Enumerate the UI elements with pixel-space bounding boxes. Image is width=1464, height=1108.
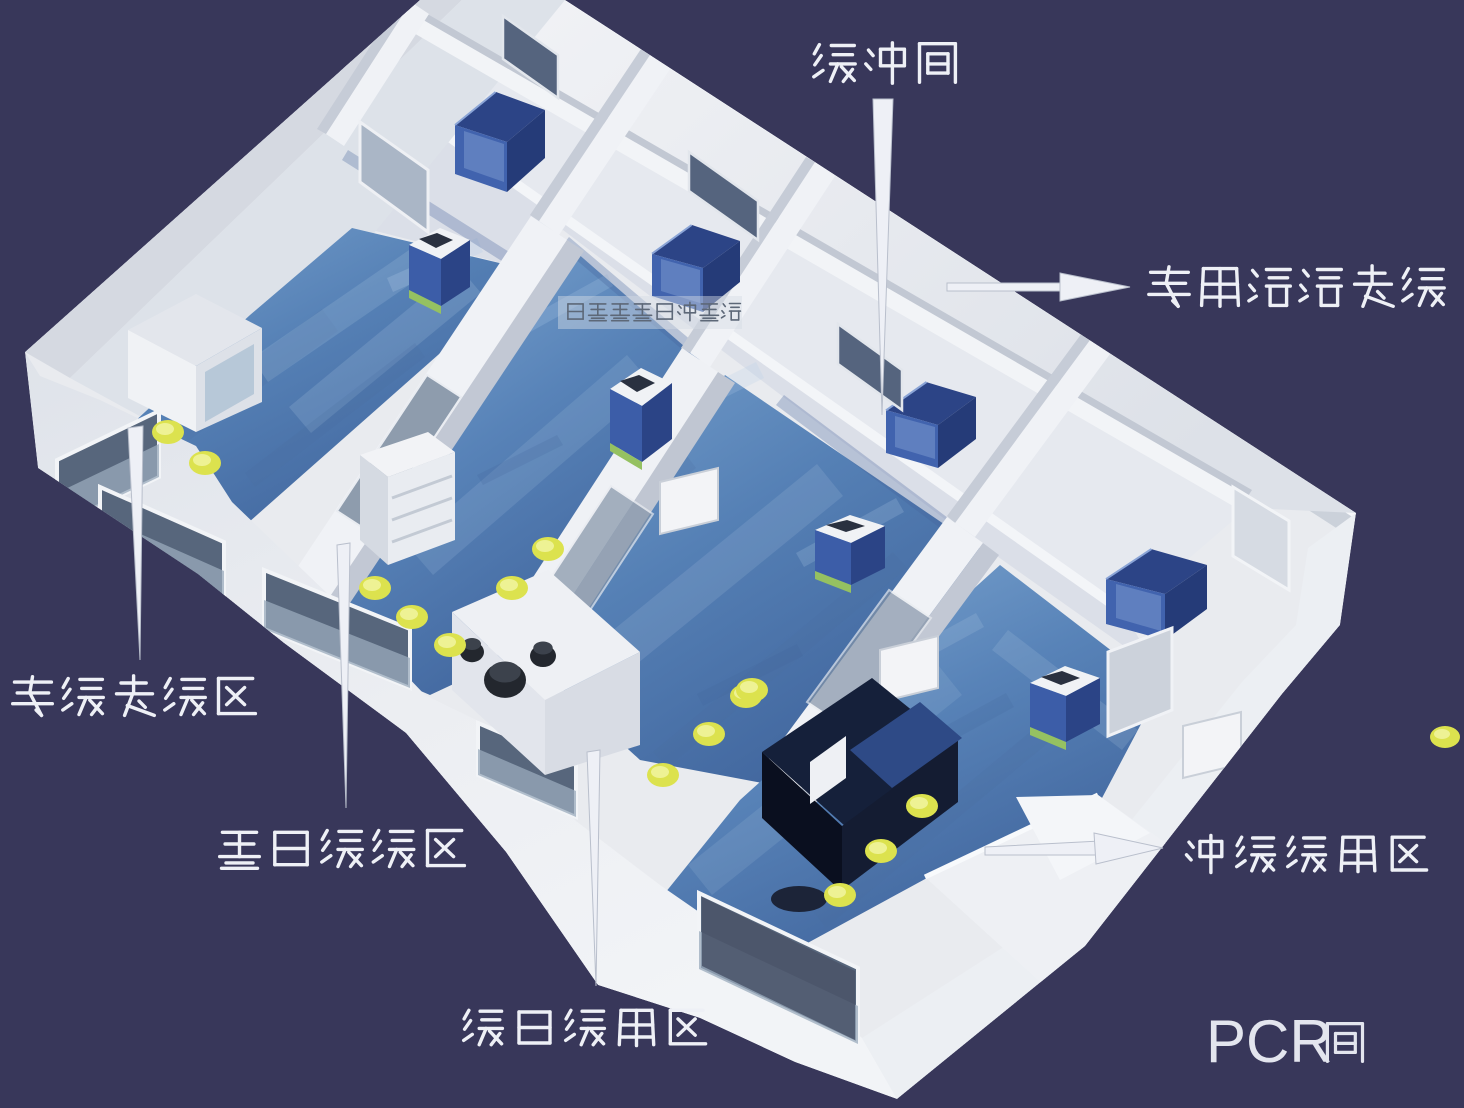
svg-text:PCR: PCR [1206, 1008, 1333, 1075]
